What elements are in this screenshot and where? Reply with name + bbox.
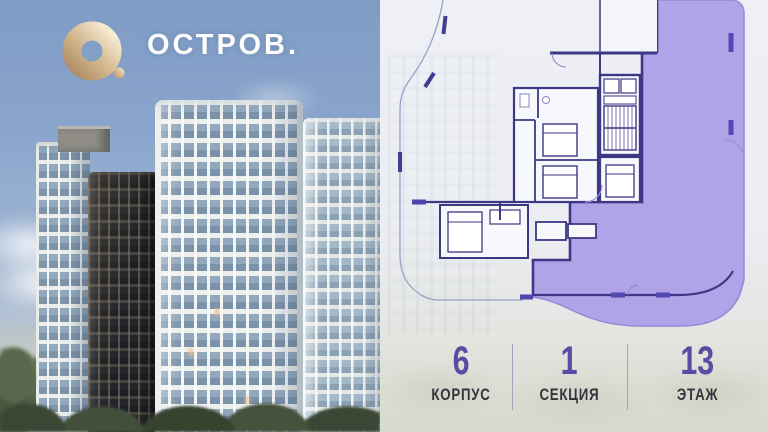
bathroom-pods bbox=[536, 222, 596, 240]
unit-info-bar: 6 КОРПУС 1 СЕКЦИЯ 13 ЭТАЖ bbox=[380, 336, 768, 420]
divider bbox=[627, 344, 628, 410]
neighbour-unit-bottom bbox=[440, 205, 528, 258]
building-number: 6 bbox=[453, 340, 470, 382]
section-number: 1 bbox=[561, 340, 578, 382]
real-estate-card: ОСТРОВ. bbox=[0, 0, 768, 432]
floor-plan-panel: 6 КОРПУС 1 СЕКЦИЯ 13 ЭТАЖ bbox=[380, 0, 768, 432]
brand-logo: ОСТРОВ. bbox=[55, 16, 299, 94]
neighbour-bedroom bbox=[600, 157, 640, 202]
info-section: 1 СЕКЦИЯ bbox=[512, 336, 627, 420]
section-label: СЕКЦИЯ bbox=[540, 385, 600, 405]
rooftop-structure bbox=[58, 126, 110, 152]
divider bbox=[512, 344, 513, 410]
floor-number: 13 bbox=[681, 340, 715, 382]
info-floor: 13 ЭТАЖ bbox=[627, 336, 768, 420]
logo-text: ОСТРОВ. bbox=[147, 29, 299, 62]
neighbour-unit-left bbox=[514, 88, 598, 202]
building-label: КОРПУС bbox=[431, 385, 490, 405]
floor-label: ЭТАЖ bbox=[677, 385, 718, 405]
stair-elevator-core bbox=[600, 53, 640, 155]
info-building: 6 КОРПУС bbox=[380, 336, 512, 420]
donut-o-icon bbox=[55, 16, 133, 94]
floor-plan bbox=[380, 0, 768, 340]
foreground-trees bbox=[0, 376, 380, 432]
